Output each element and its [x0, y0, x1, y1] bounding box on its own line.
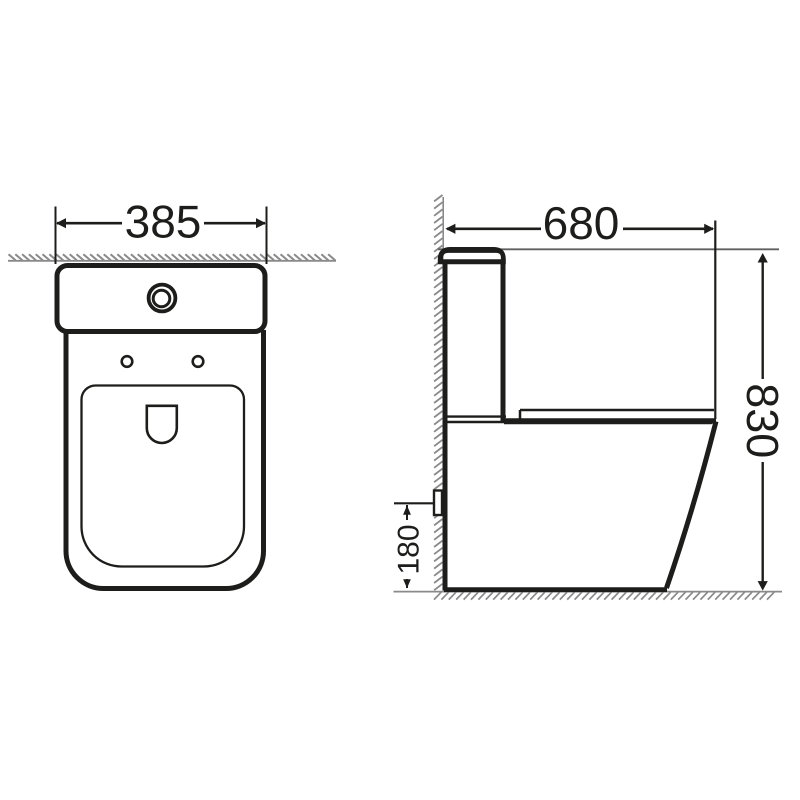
- svg-text:680: 680: [543, 197, 620, 249]
- svg-text:180: 180: [393, 524, 426, 574]
- svg-text:385: 385: [125, 196, 202, 248]
- svg-text:830: 830: [737, 383, 788, 458]
